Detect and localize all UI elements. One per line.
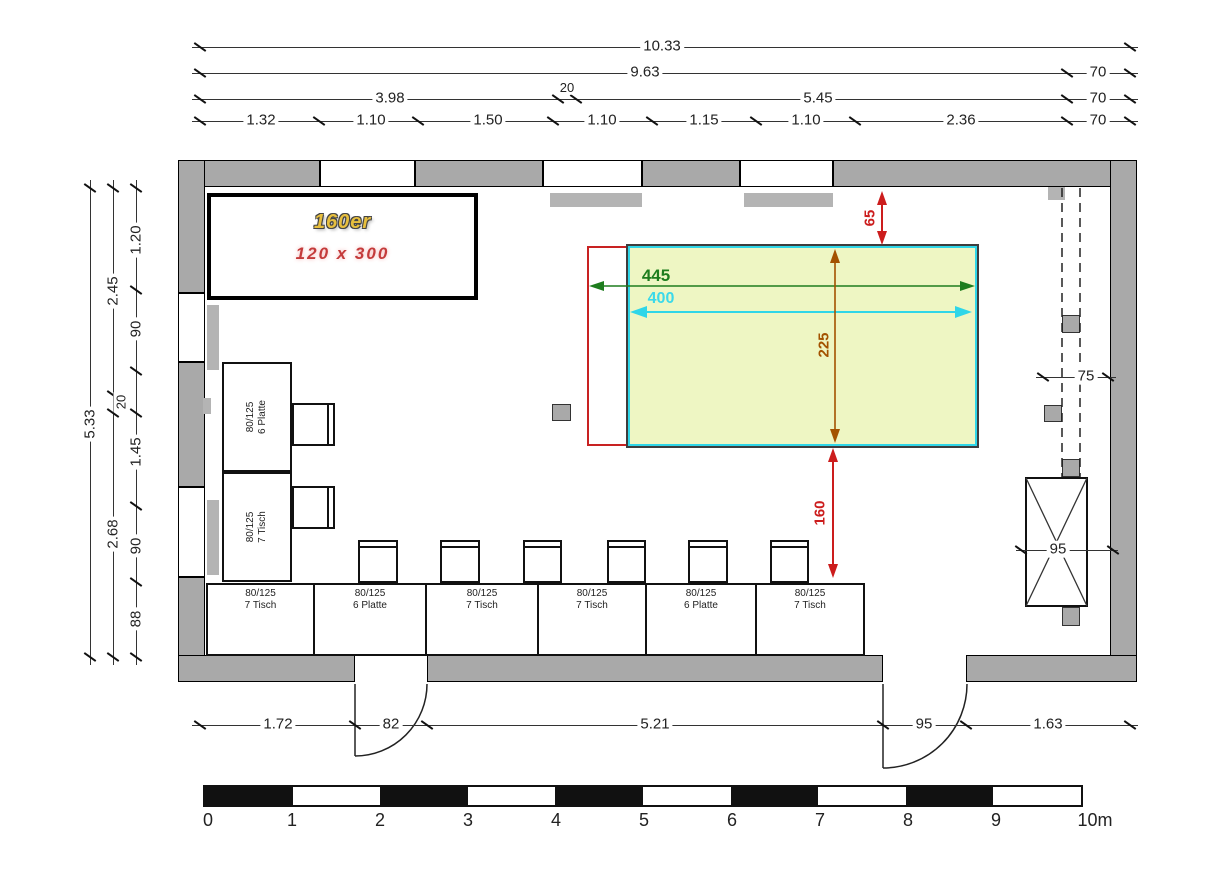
scale-bar-segment	[993, 787, 1081, 805]
table-size: 80/125	[467, 588, 498, 599]
table-side: 80/125 7 Tisch	[222, 472, 292, 582]
table-label: 7 Tisch	[794, 600, 826, 611]
wall-pilaster	[1048, 187, 1065, 200]
table-label: 6 Platte	[257, 400, 268, 434]
window-opening	[740, 160, 833, 187]
scale-bar-segment	[205, 787, 293, 805]
dim-label: 1.72	[260, 716, 295, 733]
table-label: 6 Platte	[684, 600, 718, 611]
window-opening	[320, 160, 415, 187]
wall-pilaster	[203, 398, 211, 414]
duct-block	[1062, 607, 1080, 626]
chair	[607, 540, 646, 583]
wall-top-segment	[415, 160, 543, 187]
arrowhead	[877, 191, 887, 205]
duct-block	[1044, 405, 1062, 422]
scale-bar-segment	[380, 787, 468, 805]
table-label: 7 Tisch	[576, 600, 608, 611]
dim-label: 1.15	[686, 112, 721, 129]
table-label: 7 Tisch	[245, 600, 277, 611]
scale-bar-segment	[731, 787, 819, 805]
dim-label-400: 400	[648, 290, 675, 308]
scale-label: 8	[903, 810, 913, 831]
table-size: 80/125	[577, 588, 608, 599]
dim-label: 9.63	[627, 64, 662, 81]
dim-label: 90	[128, 535, 145, 558]
scale-label: 9	[991, 810, 1001, 831]
dimension-line	[113, 180, 114, 665]
annotation-title: 160er	[211, 211, 474, 234]
chair	[770, 540, 809, 583]
radiator	[207, 305, 219, 370]
chair	[292, 403, 335, 446]
dim-label: 3.98	[372, 90, 407, 107]
dim-label-65: 65	[862, 210, 879, 227]
table-bottom: 80/1257 Tisch	[206, 583, 315, 656]
dim-label: 1.63	[1030, 716, 1065, 733]
dim-label: 70	[1087, 90, 1110, 107]
annotation-box: 160er 120 x 300	[207, 193, 478, 300]
dim-label-445: 445	[642, 266, 670, 286]
chair	[688, 540, 728, 583]
table-size: 80/125	[245, 402, 256, 433]
scale-label: 7	[815, 810, 825, 831]
dim-label: 70	[1087, 64, 1110, 81]
scale-label: 4	[551, 810, 561, 831]
dim-label: 20	[557, 80, 577, 95]
table-label: 6 Platte	[353, 600, 387, 611]
arrowhead	[828, 448, 838, 462]
dim-label: 2.68	[105, 516, 122, 551]
window-opening	[543, 160, 642, 187]
table-bottom: 80/1257 Tisch	[537, 583, 647, 656]
column	[552, 404, 571, 421]
scale-bar-segment	[906, 787, 994, 805]
table-bottom: 80/1256 Platte	[313, 583, 427, 656]
chair	[358, 540, 398, 583]
arrowhead	[828, 564, 838, 578]
table-size: 80/125	[355, 588, 386, 599]
wall-bottom-segment	[427, 655, 883, 682]
dim-label: 75	[1075, 368, 1098, 385]
window-opening	[178, 487, 205, 577]
table-size: 80/125	[795, 588, 826, 599]
dim-label: 5.33	[82, 406, 99, 441]
dim-label: 5.21	[637, 716, 672, 733]
annotation-subtitle: 120 x 300	[211, 244, 474, 264]
dim-label: 2.36	[943, 112, 978, 129]
scale-bar-segment	[555, 787, 643, 805]
wall-bottom-segment	[966, 655, 1137, 682]
dim-label-225: 225	[816, 332, 833, 357]
highlight-area-rect	[628, 246, 977, 446]
dim-label: 1.50	[470, 112, 505, 129]
dimension-line	[192, 99, 1138, 100]
dim-label: 90	[128, 318, 145, 341]
dim-label-160: 160	[812, 500, 829, 525]
wall-top-segment	[642, 160, 740, 187]
dim-label: 1.10	[788, 112, 823, 129]
wall-left-segment	[178, 362, 205, 487]
arrowhead	[877, 231, 887, 245]
wall-left-segment	[178, 160, 205, 293]
dim-label: 1.20	[128, 222, 145, 257]
table-label: 7 Tisch	[257, 511, 268, 543]
scale-label: 10m	[1077, 810, 1112, 831]
dim-label: 95	[913, 716, 936, 733]
scale-label: 5	[639, 810, 649, 831]
chair	[523, 540, 562, 583]
duct-block	[1062, 459, 1080, 477]
floor-plan: 160er 120 x 300 80/125 6 Platte 80/125 7…	[0, 0, 1215, 888]
scale-label: 1	[287, 810, 297, 831]
scale-label: 0	[203, 810, 213, 831]
scale-bar-segment	[643, 787, 731, 805]
dim-label: 1.32	[243, 112, 278, 129]
radiator	[550, 193, 642, 207]
table-bottom: 80/1257 Tisch	[425, 583, 539, 656]
scale-bar	[203, 785, 1083, 807]
dim-label: 10.33	[640, 38, 684, 55]
scale-bar-segment	[818, 787, 906, 805]
table-size: 80/125	[245, 512, 256, 543]
table-label: 7 Tisch	[466, 600, 498, 611]
dim-label: 20	[114, 392, 129, 412]
scale-label: 2	[375, 810, 385, 831]
dim-label: 1.10	[353, 112, 388, 129]
scale-bar-segment	[468, 787, 556, 805]
wall-top-segment	[833, 160, 1137, 187]
dim-label: 5.45	[800, 90, 835, 107]
dim-label: 2.45	[105, 273, 122, 308]
scale-label: 6	[727, 810, 737, 831]
table-size: 80/125	[686, 588, 717, 599]
dim-label: 70	[1087, 112, 1110, 129]
scale-bar-segment	[293, 787, 381, 805]
window-opening	[178, 293, 205, 362]
wall-bottom-segment	[178, 655, 355, 682]
dim-label: 82	[380, 716, 403, 733]
table-bottom: 80/1257 Tisch	[755, 583, 865, 656]
dimension-line	[192, 121, 1138, 122]
table-side: 80/125 6 Platte	[222, 362, 292, 472]
dim-label: 1.45	[128, 434, 145, 469]
dim-label: 1.10	[584, 112, 619, 129]
table-size: 80/125	[245, 588, 276, 599]
dimension-line	[192, 73, 1138, 74]
scale-label: 3	[463, 810, 473, 831]
wall-right	[1110, 160, 1137, 682]
dim-label: 95	[1047, 541, 1070, 558]
chair	[440, 540, 480, 583]
table-bottom: 80/1256 Platte	[645, 583, 757, 656]
radiator	[744, 193, 833, 207]
chair	[292, 486, 335, 529]
dim-label: 88	[128, 608, 145, 631]
radiator	[207, 500, 219, 575]
duct-block	[1062, 315, 1080, 333]
